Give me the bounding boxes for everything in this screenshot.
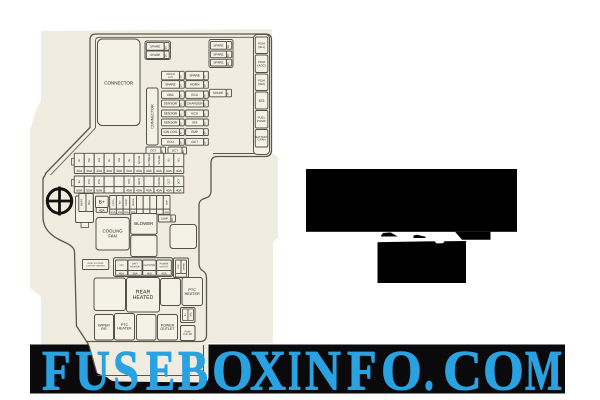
svg-text:HPCU: HPCU <box>112 199 115 206</box>
svg-text:SPARE: SPARE <box>150 53 160 57</box>
svg-text:OCT: OCT <box>150 149 157 153</box>
svg-text:40A: 40A <box>146 169 153 173</box>
svg-text:HEATER: HEATER <box>185 292 200 296</box>
svg-text:80A: 80A <box>88 200 91 205</box>
svg-text:15A: 15A <box>111 211 116 214</box>
svg-text:SENSOR: SENSOR <box>164 121 178 125</box>
svg-text:40A: 40A <box>156 189 163 193</box>
svg-text:OCT: OCT <box>191 140 198 144</box>
svg-text:HORN: HORN <box>190 83 200 87</box>
svg-text:40A: 40A <box>119 271 124 275</box>
svg-text:U: U <box>75 340 110 400</box>
svg-text:10: 10 <box>179 141 183 145</box>
svg-text:30A: 30A <box>96 169 103 173</box>
svg-text:10: 10 <box>179 122 183 126</box>
svg-text:10: 10 <box>203 84 207 88</box>
svg-text:I: I <box>288 340 301 400</box>
svg-text:40A: 40A <box>99 208 106 212</box>
svg-text:ECU: ECU <box>167 140 174 144</box>
svg-text:HEATER: HEATER <box>130 265 139 268</box>
svg-text:DCT: DCT <box>178 178 181 184</box>
svg-text:10: 10 <box>226 53 230 57</box>
svg-text:HTD: HTD <box>128 179 131 185</box>
svg-text:TRL: TRL <box>88 157 91 163</box>
svg-text:40A: 40A <box>146 189 153 193</box>
svg-text:PTC: PTC <box>98 179 101 184</box>
svg-text:M: M <box>525 340 562 400</box>
svg-text:SPARE: SPARE <box>158 155 161 164</box>
svg-text:CONNECTOR: CONNECTOR <box>151 104 155 129</box>
svg-text:10: 10 <box>163 46 167 50</box>
svg-text:BLOWER: BLOWER <box>134 221 153 226</box>
svg-text:60A: 60A <box>76 189 83 193</box>
svg-text:30A: 30A <box>189 312 192 317</box>
svg-text:B3: B3 <box>178 158 181 162</box>
svg-text:40A: 40A <box>166 169 173 173</box>
svg-text:40A: 40A <box>136 169 143 173</box>
svg-text:40A: 40A <box>176 169 183 173</box>
svg-text:DCT: DCT <box>172 149 178 153</box>
svg-text:IG3: IG3 <box>192 121 197 125</box>
svg-text:OCT: OCT <box>168 178 171 184</box>
svg-text:FAN: FAN <box>108 233 117 238</box>
svg-text:B: B <box>178 340 208 400</box>
svg-text:EMP: EMP <box>161 217 168 221</box>
svg-text:(IG2): (IG2) <box>258 82 265 86</box>
svg-text:FRT: FRT <box>168 76 173 79</box>
svg-text:SPARE: SPARE <box>182 263 185 271</box>
svg-text:SPARE: SPARE <box>150 44 160 48</box>
svg-text:B+: B+ <box>78 179 81 183</box>
svg-text:SPARE: SPARE <box>213 61 223 65</box>
svg-text:CUT-OFF SWITCH: CUT-OFF SWITCH <box>86 265 105 268</box>
svg-text:30A: 30A <box>106 169 113 173</box>
svg-text:IGN COIL: IGN COIL <box>164 130 178 134</box>
svg-text:HEATER: HEATER <box>117 327 132 331</box>
svg-text:B+: B+ <box>99 199 105 205</box>
svg-text:PUMP: PUMP <box>257 119 266 123</box>
svg-text:IG3: IG3 <box>259 99 265 103</box>
svg-text:10: 10 <box>179 113 183 117</box>
svg-text:MDPS: MDPS <box>81 198 84 206</box>
svg-text:10: 10 <box>203 122 207 126</box>
svg-text:10: 10 <box>181 150 185 154</box>
svg-text:PULLER: PULLER <box>183 333 192 336</box>
svg-text:INVERTER: INVERTER <box>144 264 156 267</box>
svg-text:40A: 40A <box>156 169 163 173</box>
svg-text:F: F <box>42 340 71 400</box>
svg-text:A/CON: A/CON <box>138 156 141 165</box>
svg-text:10: 10 <box>179 103 183 107</box>
svg-text:F/PMP: F/PMP <box>125 198 128 205</box>
svg-text:20A: 20A <box>76 169 83 173</box>
svg-text:OBC: OBC <box>167 93 175 97</box>
svg-text:E: E <box>146 340 175 400</box>
svg-text:SPARE: SPARE <box>158 177 161 186</box>
svg-text:OUTLET: OUTLET <box>159 265 169 268</box>
svg-text:10: 10 <box>203 131 207 135</box>
svg-text:10A: 10A <box>124 211 129 214</box>
svg-text:SPARE: SPARE <box>189 74 200 78</box>
svg-text:30A: 30A <box>132 271 137 275</box>
svg-text:ECU: ECU <box>191 93 198 97</box>
svg-text:OUTLET: OUTLET <box>160 327 175 331</box>
svg-text:40A: 40A <box>161 271 166 275</box>
svg-text:10: 10 <box>179 84 183 88</box>
svg-text:IG3: IG3 <box>118 157 121 162</box>
svg-text:BLOWER: BLOWER <box>148 154 151 166</box>
svg-text:10A: 10A <box>164 211 169 214</box>
svg-text:O: O <box>483 340 524 400</box>
svg-text:10: 10 <box>160 150 164 154</box>
svg-text:10: 10 <box>170 218 174 222</box>
svg-text:(ACC): (ACC) <box>257 63 265 67</box>
svg-text:B+: B+ <box>128 158 131 162</box>
svg-text:HIGH VOLTAGE: HIGH VOLTAGE <box>88 262 105 265</box>
svg-text:30A: 30A <box>126 169 133 173</box>
svg-text:SENSOR: SENSOR <box>164 112 178 116</box>
svg-text:BATT: BATT <box>132 263 138 266</box>
svg-text:10: 10 <box>226 62 230 66</box>
svg-text:40A: 40A <box>176 189 183 193</box>
svg-text:10: 10 <box>163 54 167 58</box>
svg-text:SPARE: SPARE <box>132 198 135 206</box>
svg-text:O: O <box>212 340 253 400</box>
svg-text:.: . <box>424 340 434 400</box>
svg-text:10: 10 <box>226 92 230 96</box>
svg-text:10: 10 <box>203 113 207 117</box>
svg-text:B+: B+ <box>108 158 111 162</box>
svg-text:ECU: ECU <box>191 112 198 116</box>
svg-text:10A: 10A <box>117 211 122 214</box>
svg-text:EMP: EMP <box>191 130 198 134</box>
svg-text:(IG1): (IG1) <box>258 45 265 49</box>
svg-text:SPARE: SPARE <box>165 83 176 87</box>
svg-text:40A: 40A <box>136 189 143 193</box>
svg-text:10: 10 <box>179 131 183 135</box>
svg-text:SPARE: SPARE <box>213 91 223 95</box>
svg-text:40A: 40A <box>126 189 133 193</box>
svg-text:EMP: EMP <box>165 199 168 204</box>
svg-text:X: X <box>250 340 286 400</box>
svg-text:30A: 30A <box>86 169 93 173</box>
svg-text:40A: 40A <box>166 189 173 193</box>
svg-text:10: 10 <box>203 94 207 98</box>
svg-text:50A: 50A <box>86 189 93 193</box>
svg-text:10: 10 <box>203 141 207 145</box>
svg-text:50A: 50A <box>96 189 103 193</box>
svg-text:SPARE: SPARE <box>213 43 223 47</box>
svg-text:POWER: POWER <box>160 263 169 266</box>
svg-text:N: N <box>305 340 341 400</box>
svg-text:10: 10 <box>226 45 230 49</box>
svg-text:RR: RR <box>101 327 107 331</box>
svg-text:C/FAN: C/FAN <box>258 139 266 142</box>
svg-text:B2: B2 <box>168 158 171 162</box>
svg-text:10: 10 <box>203 103 207 107</box>
svg-text:O: O <box>381 340 422 400</box>
svg-text:CONNECTOR: CONNECTOR <box>104 81 134 86</box>
svg-text:40A: 40A <box>147 271 152 275</box>
svg-text:F: F <box>347 340 377 400</box>
svg-text:10: 10 <box>179 94 183 98</box>
svg-text:WPR: WPR <box>138 178 141 184</box>
svg-text:10: 10 <box>179 75 183 79</box>
svg-text:SPARE: SPARE <box>213 52 223 56</box>
svg-text:HEATED: HEATED <box>133 295 154 301</box>
svg-text:SENSOR: SENSOR <box>164 102 178 106</box>
svg-text:CHARGER: CHARGER <box>187 102 204 106</box>
svg-text:S: S <box>113 340 139 400</box>
svg-text:30A: 30A <box>116 169 123 173</box>
svg-text:C: C <box>443 340 482 400</box>
svg-text:LDC: LDC <box>177 264 180 269</box>
svg-text:PTC: PTC <box>88 179 91 184</box>
svg-text:IG3: IG3 <box>98 157 101 162</box>
svg-text:B+: B+ <box>78 158 81 162</box>
svg-text:10: 10 <box>203 75 207 79</box>
